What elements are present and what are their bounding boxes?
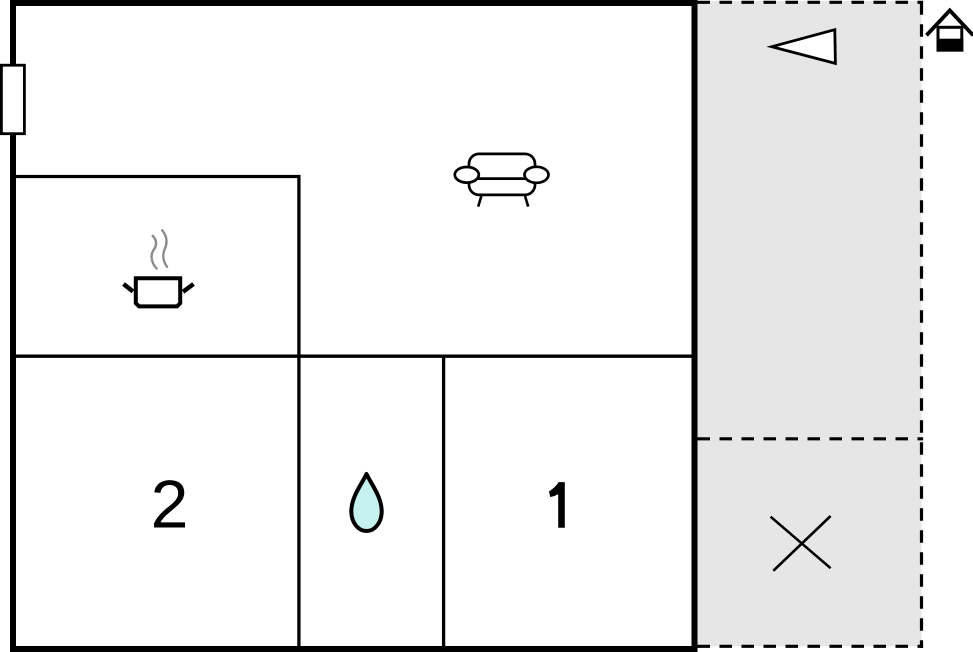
svg-text:2: 2 (151, 467, 189, 543)
